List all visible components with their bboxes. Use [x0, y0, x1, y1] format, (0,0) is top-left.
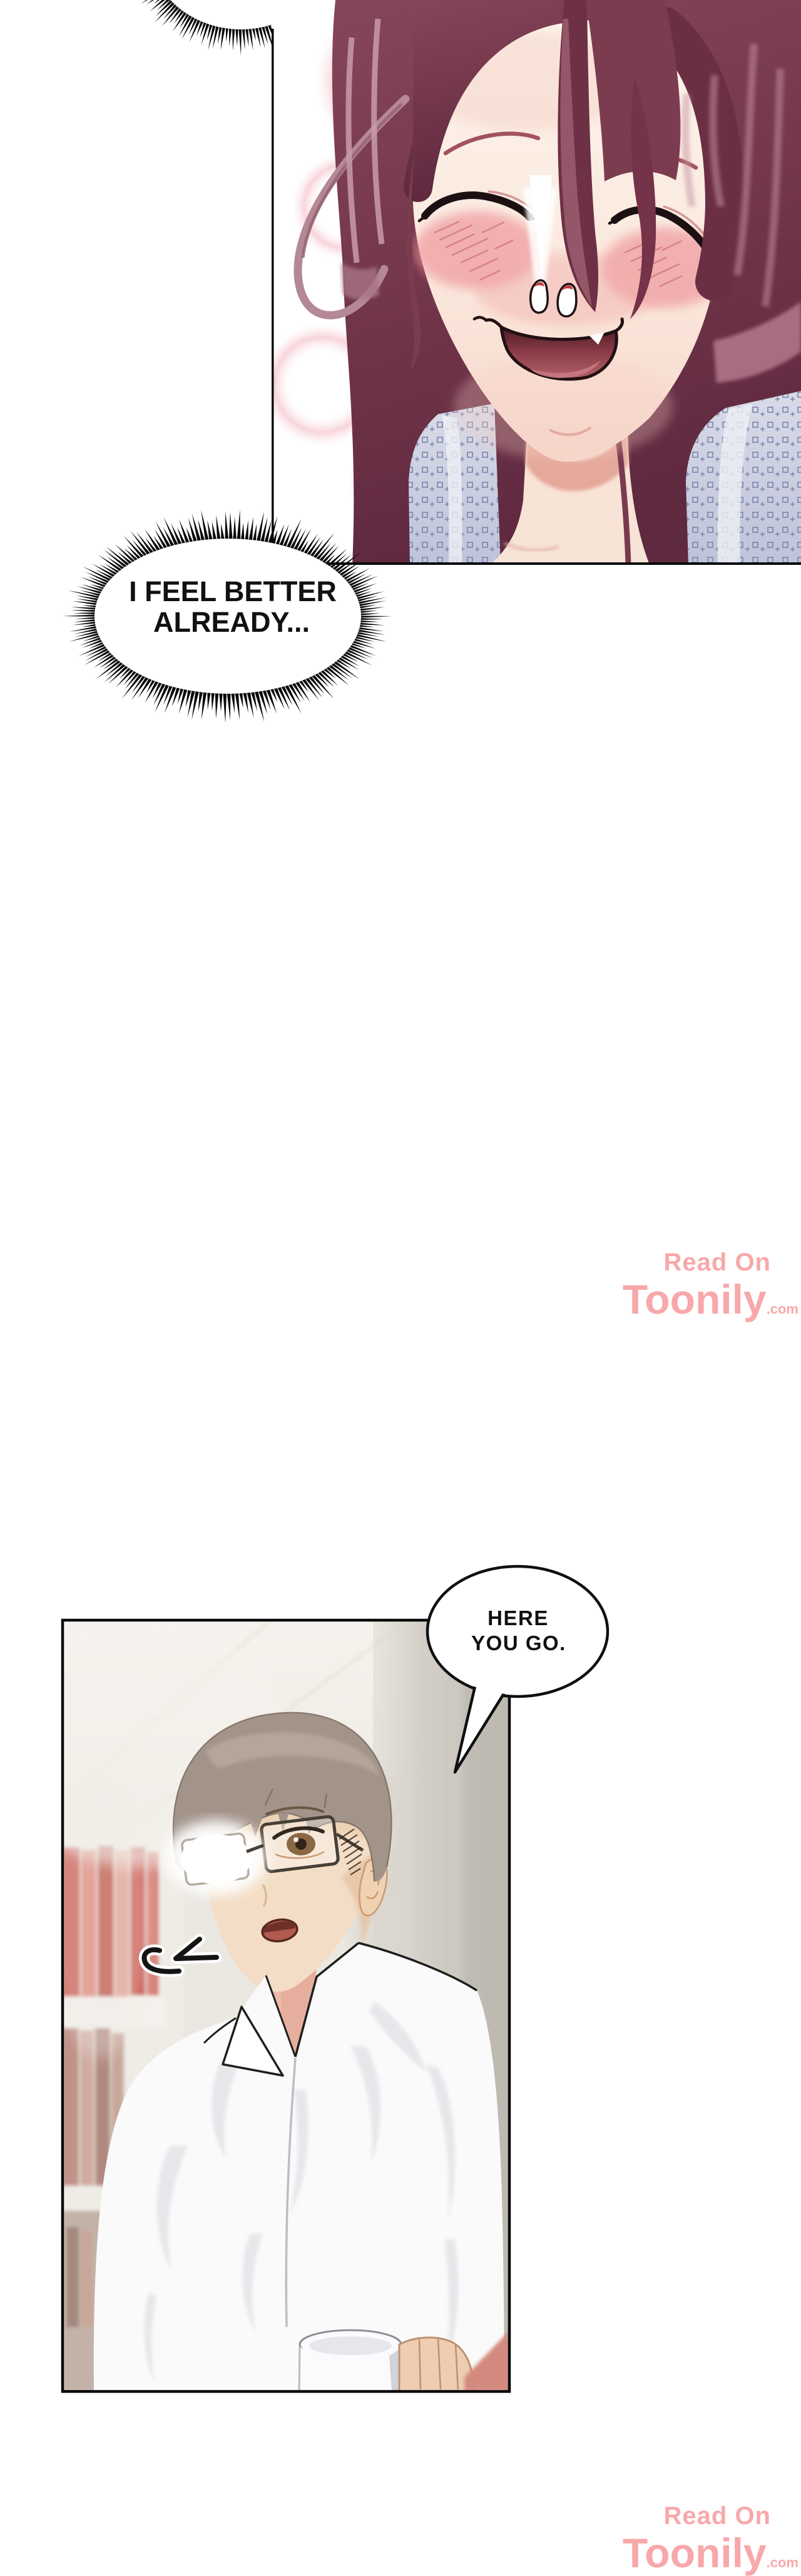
svg-text:HERE: HERE [487, 1606, 549, 1630]
svg-text:ALREADY...: ALREADY... [153, 606, 310, 638]
svg-text:YOU GO.: YOU GO. [471, 1631, 566, 1655]
svg-text:I FEEL BETTER: I FEEL BETTER [129, 576, 337, 607]
